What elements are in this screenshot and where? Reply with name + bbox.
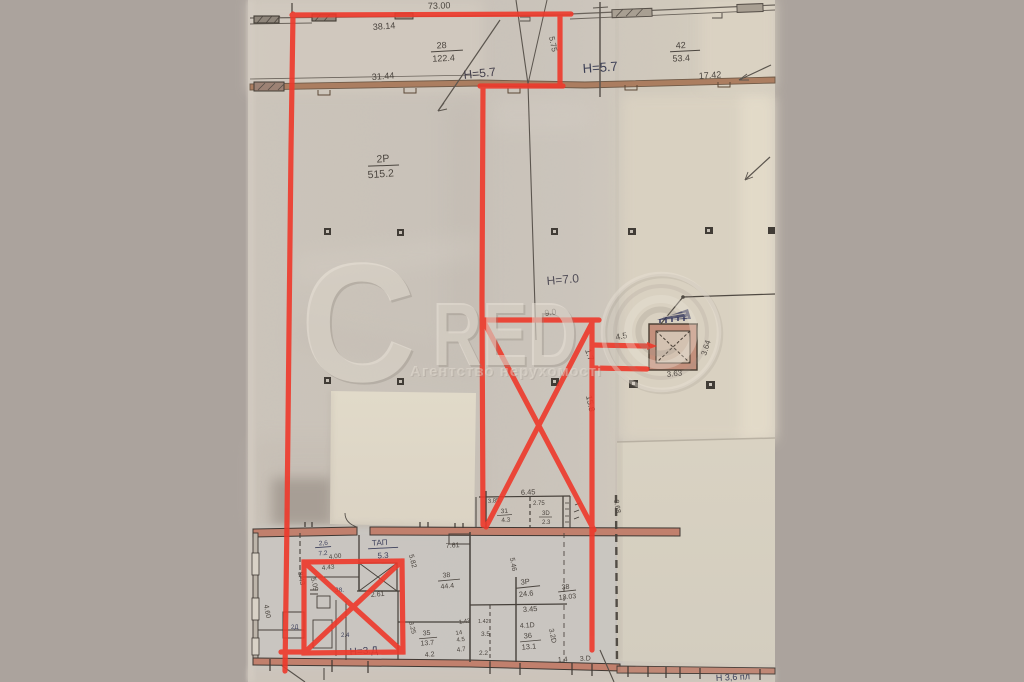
svg-text:Н 3,6 пл: Н 3,6 пл [716, 671, 751, 682]
svg-text:7.2: 7.2 [318, 550, 328, 558]
svg-text:2Д: 2Д [291, 625, 298, 631]
svg-text:13.1: 13.1 [521, 642, 536, 652]
svg-text:2.75: 2.75 [533, 501, 545, 507]
svg-text:4.2: 4.2 [425, 651, 435, 659]
svg-text:38: 38 [442, 572, 450, 580]
svg-text:13.7: 13.7 [420, 639, 434, 647]
svg-text:1.4: 1.4 [558, 656, 568, 664]
svg-text:38: 38 [561, 584, 570, 592]
svg-text:4.43: 4.43 [321, 564, 335, 572]
svg-text:4.7: 4.7 [456, 646, 466, 654]
svg-text:4.1D: 4.1D [520, 622, 535, 630]
svg-text:73.00: 73.00 [428, 0, 451, 11]
svg-text:17.42: 17.42 [698, 69, 721, 81]
svg-text:6.45: 6.45 [521, 487, 536, 497]
svg-text:3.D: 3.D [580, 655, 591, 663]
svg-text:2.3: 2.3 [542, 520, 551, 526]
svg-text:44.4: 44.4 [440, 583, 454, 591]
svg-text:2.4: 2.4 [341, 633, 350, 639]
svg-text:122.4: 122.4 [432, 53, 455, 64]
svg-text:4.3: 4.3 [501, 517, 511, 525]
svg-text:3Р: 3Р [520, 577, 530, 587]
svg-text:3.5: 3.5 [481, 631, 490, 638]
svg-text:28: 28 [436, 40, 447, 51]
svg-text:C: C [300, 228, 416, 418]
svg-text:53.4: 53.4 [672, 53, 690, 64]
svg-text:H=5.7: H=5.7 [582, 59, 618, 76]
svg-text:24.6: 24.6 [518, 589, 533, 599]
svg-text:3D: 3D [542, 511, 550, 517]
svg-text:31: 31 [501, 508, 509, 516]
svg-text:4.5: 4.5 [456, 637, 466, 644]
svg-text:ТАП: ТАП [372, 538, 388, 548]
svg-text:2,6: 2,6 [319, 540, 329, 548]
svg-text:42: 42 [675, 40, 686, 51]
svg-text:35: 35 [422, 630, 430, 638]
svg-text:36: 36 [523, 631, 532, 641]
svg-text:Агентство нерухомості: Агентство нерухомості [410, 363, 602, 380]
svg-text:1.42: 1.42 [478, 619, 489, 625]
svg-text:31.44: 31.44 [371, 70, 394, 82]
svg-text:38.14: 38.14 [372, 20, 395, 32]
svg-text:2.2: 2.2 [479, 650, 488, 657]
svg-text:515.2: 515.2 [367, 167, 394, 181]
svg-text:7.61: 7.61 [446, 542, 460, 550]
svg-text:2Р: 2Р [376, 153, 390, 166]
svg-text:3.45: 3.45 [523, 604, 538, 614]
